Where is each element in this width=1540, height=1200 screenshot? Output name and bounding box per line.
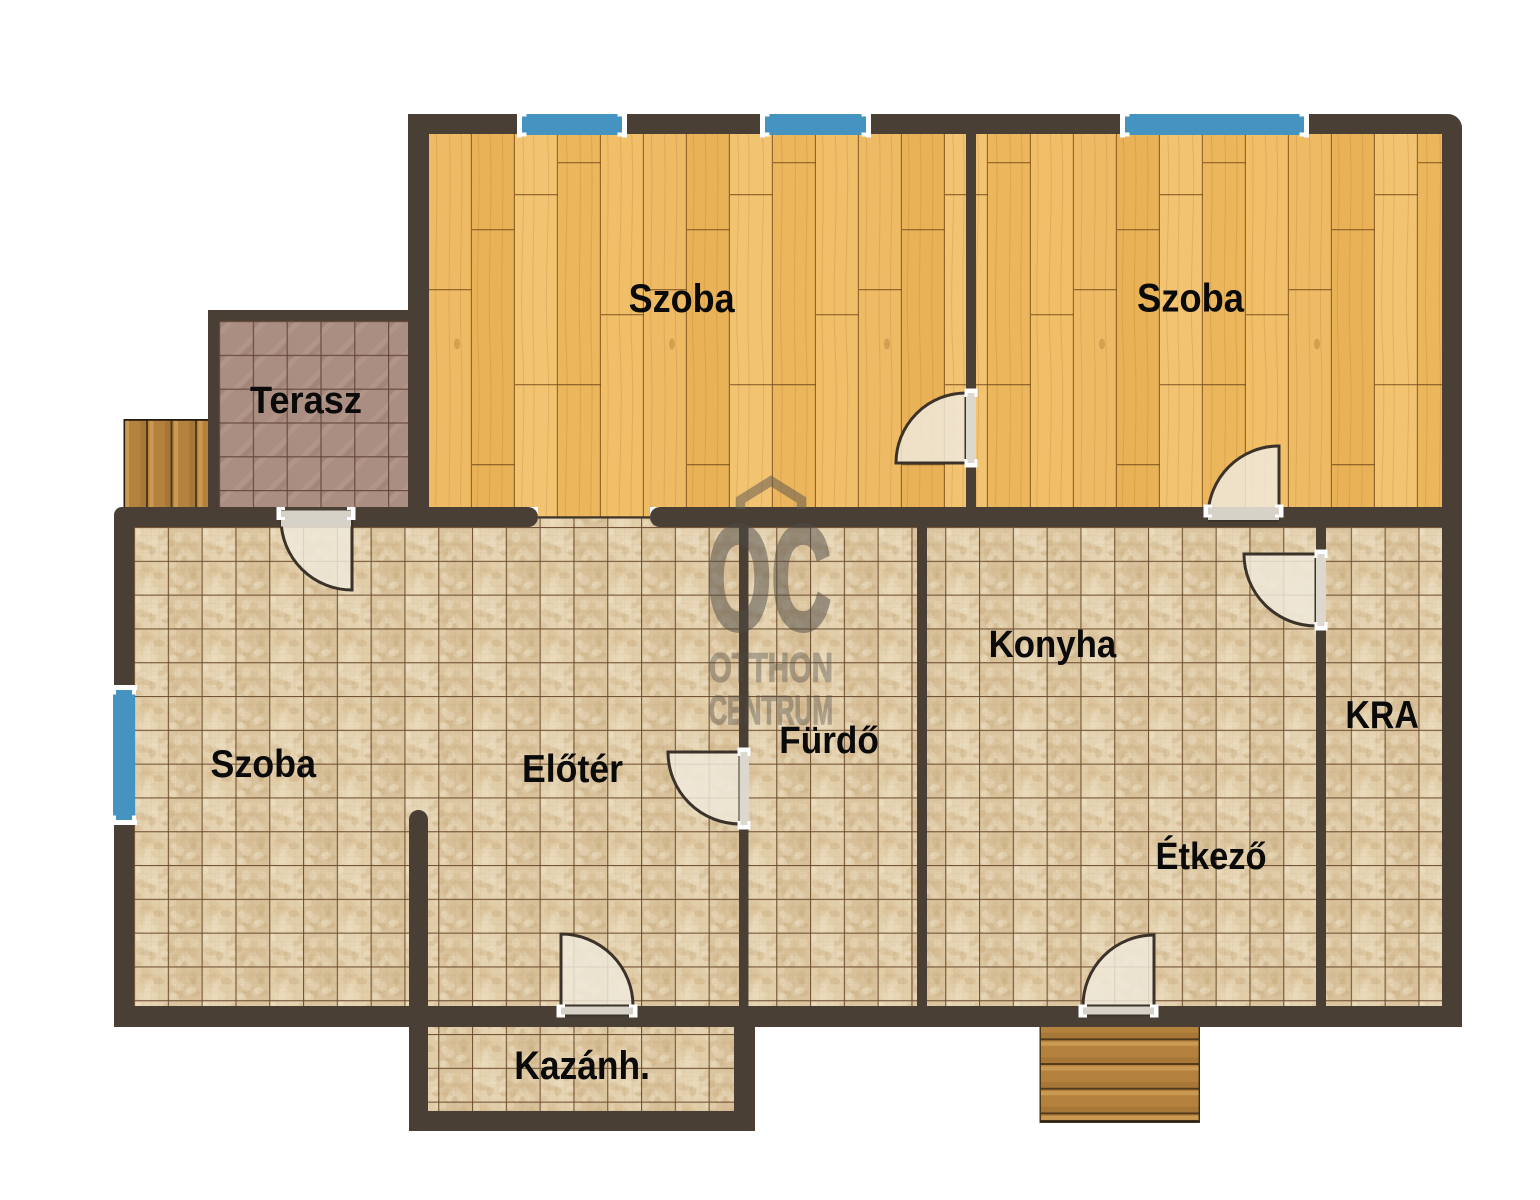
svg-text:Terasz: Terasz (250, 380, 362, 422)
svg-text:OTTHON: OTTHON (709, 645, 833, 691)
svg-text:Étkező: Étkező (1156, 834, 1267, 878)
svg-text:CENTRUM: CENTRUM (709, 687, 833, 733)
svg-text:Szoba: Szoba (629, 277, 736, 321)
svg-text:Kazánh.: Kazánh. (514, 1044, 650, 1088)
svg-text:Szoba: Szoba (211, 743, 317, 786)
svg-text:Konyha: Konyha (989, 624, 1118, 666)
svg-text:Szoba: Szoba (1137, 277, 1245, 321)
svg-text:KRA: KRA (1345, 694, 1419, 737)
svg-text:Előtér: Előtér (522, 748, 623, 791)
svg-text:OC: OC (707, 496, 831, 661)
